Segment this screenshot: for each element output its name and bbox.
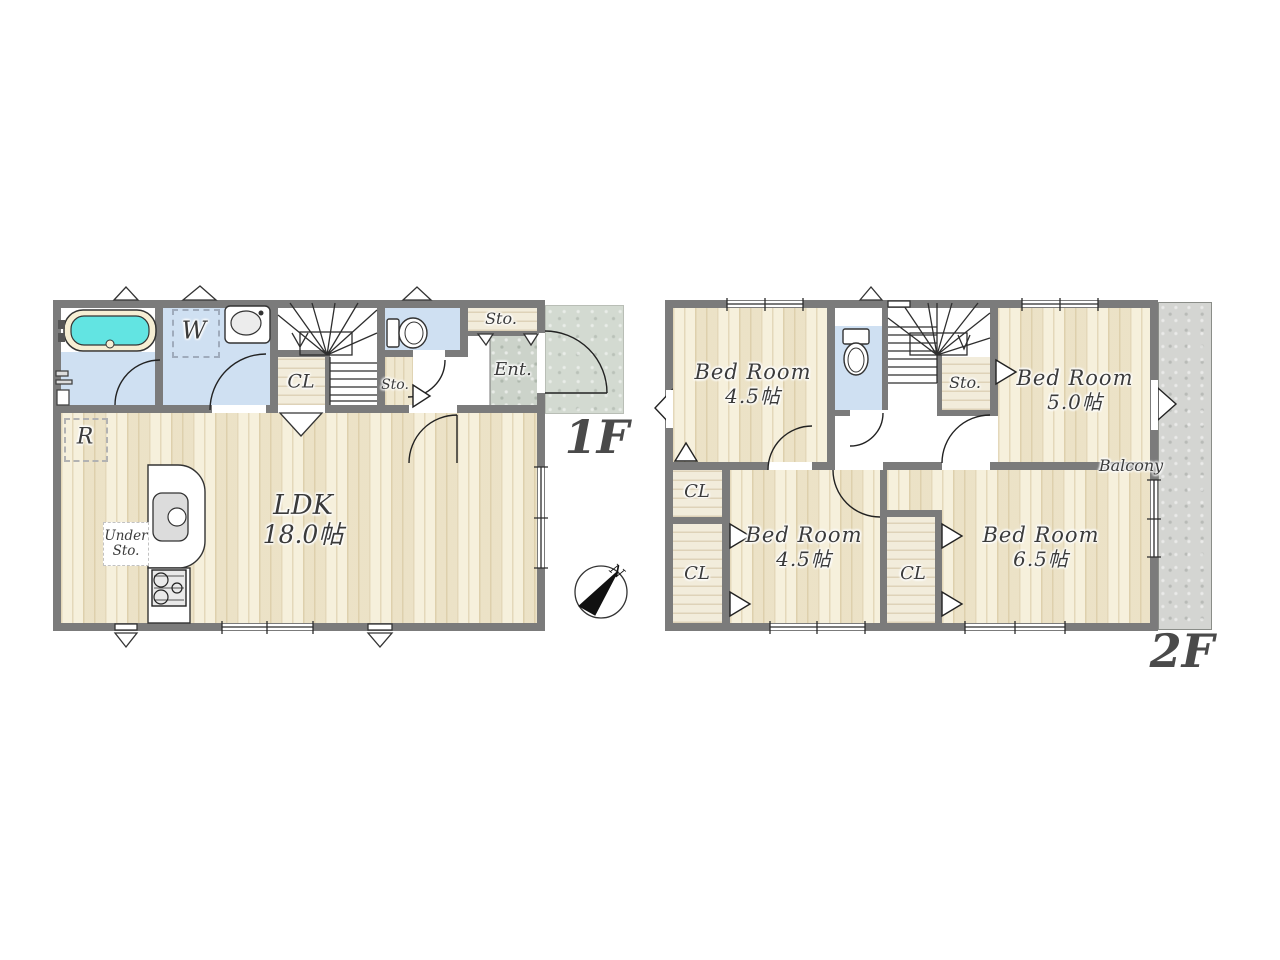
wall bbox=[270, 300, 278, 405]
wall bbox=[467, 331, 545, 336]
wall bbox=[53, 300, 545, 308]
wall bbox=[880, 470, 887, 623]
wall bbox=[385, 350, 413, 357]
wall bbox=[53, 623, 545, 631]
wall bbox=[937, 410, 998, 416]
room-label-bedroom-ne: Bed Room 5.0帖 bbox=[1017, 367, 1134, 413]
wall bbox=[665, 462, 768, 470]
floor-plan-canvas: N W CL Sto. Sto. Ent. LDK 18.0帖 Under St… bbox=[0, 0, 1280, 960]
wall bbox=[665, 517, 730, 524]
room-label-washroom: W bbox=[182, 318, 207, 345]
wall bbox=[835, 410, 850, 416]
room-label-sto-2f: Sto. bbox=[949, 374, 981, 392]
room-label-closet-center: CL bbox=[900, 564, 926, 584]
balcony-floor bbox=[1158, 302, 1212, 630]
room-label-bedroom-sw: Bed Room 4.5帖 bbox=[746, 524, 863, 570]
room-label-entrance: Ent. bbox=[494, 360, 532, 380]
wall bbox=[266, 405, 278, 413]
room-label-closet-nw: CL bbox=[684, 482, 710, 502]
wall bbox=[665, 623, 1158, 631]
wall bbox=[325, 355, 330, 405]
wall bbox=[722, 470, 730, 623]
wall bbox=[827, 300, 835, 470]
room-toilet1f-floor bbox=[385, 308, 460, 350]
under-sto-line1: Under bbox=[104, 529, 147, 544]
wall bbox=[325, 405, 409, 413]
bedroom-nw-name: Bed Room bbox=[695, 361, 812, 385]
ldk-size: 18.0帖 bbox=[263, 521, 344, 549]
bedroom-nw-size: 4.5帖 bbox=[695, 385, 812, 407]
wall bbox=[880, 510, 942, 517]
room-label-sto-hall: Sto. bbox=[485, 310, 517, 328]
ldk-name: LDK bbox=[263, 491, 344, 521]
bedroom-sw-size: 4.5帖 bbox=[746, 548, 863, 570]
wall bbox=[937, 355, 942, 416]
room-label-closet-sw: CL bbox=[684, 564, 710, 584]
wall bbox=[53, 405, 212, 413]
wall bbox=[53, 300, 61, 631]
room-label-bedroom-se: Bed Room 6.5帖 bbox=[983, 524, 1100, 570]
floor2-label: 2F bbox=[1150, 624, 1215, 678]
wall bbox=[883, 462, 942, 470]
under-sto-line2: Sto. bbox=[104, 544, 147, 559]
balcony-label: Balcony bbox=[1099, 457, 1163, 475]
room-label-under-sto: Under Sto. bbox=[104, 529, 147, 559]
compass: N bbox=[575, 559, 629, 618]
fridge-label: R bbox=[77, 426, 94, 451]
floor1-label: 1F bbox=[565, 410, 630, 464]
wall bbox=[990, 300, 998, 362]
wall bbox=[460, 300, 468, 357]
wall bbox=[445, 350, 460, 357]
room-label-sto-under-stairs: Sto. bbox=[381, 378, 409, 394]
wall bbox=[935, 517, 942, 623]
wall bbox=[537, 300, 545, 631]
bedroom-ne-size: 5.0帖 bbox=[1017, 391, 1134, 413]
bedroom-ne-name: Bed Room bbox=[1017, 367, 1134, 391]
wall bbox=[882, 300, 888, 410]
porch bbox=[545, 305, 624, 414]
bedroom-sw-name: Bed Room bbox=[746, 524, 863, 548]
wall bbox=[155, 300, 163, 405]
room-label-bedroom-nw: Bed Room 4.5帖 bbox=[695, 361, 812, 407]
wall bbox=[990, 355, 998, 416]
compass-north-label: N bbox=[605, 559, 628, 582]
room-bathroom-floor bbox=[61, 352, 155, 405]
bedroom-se-size: 6.5帖 bbox=[983, 548, 1100, 570]
wall bbox=[457, 405, 545, 413]
wall bbox=[665, 300, 1158, 308]
room-label-closet-1f: CL bbox=[287, 371, 314, 392]
room-toilet2f-floor bbox=[835, 326, 882, 410]
wall bbox=[278, 350, 325, 357]
bedroom-se-name: Bed Room bbox=[983, 524, 1100, 548]
room-label-ldk: LDK 18.0帖 bbox=[263, 491, 344, 549]
